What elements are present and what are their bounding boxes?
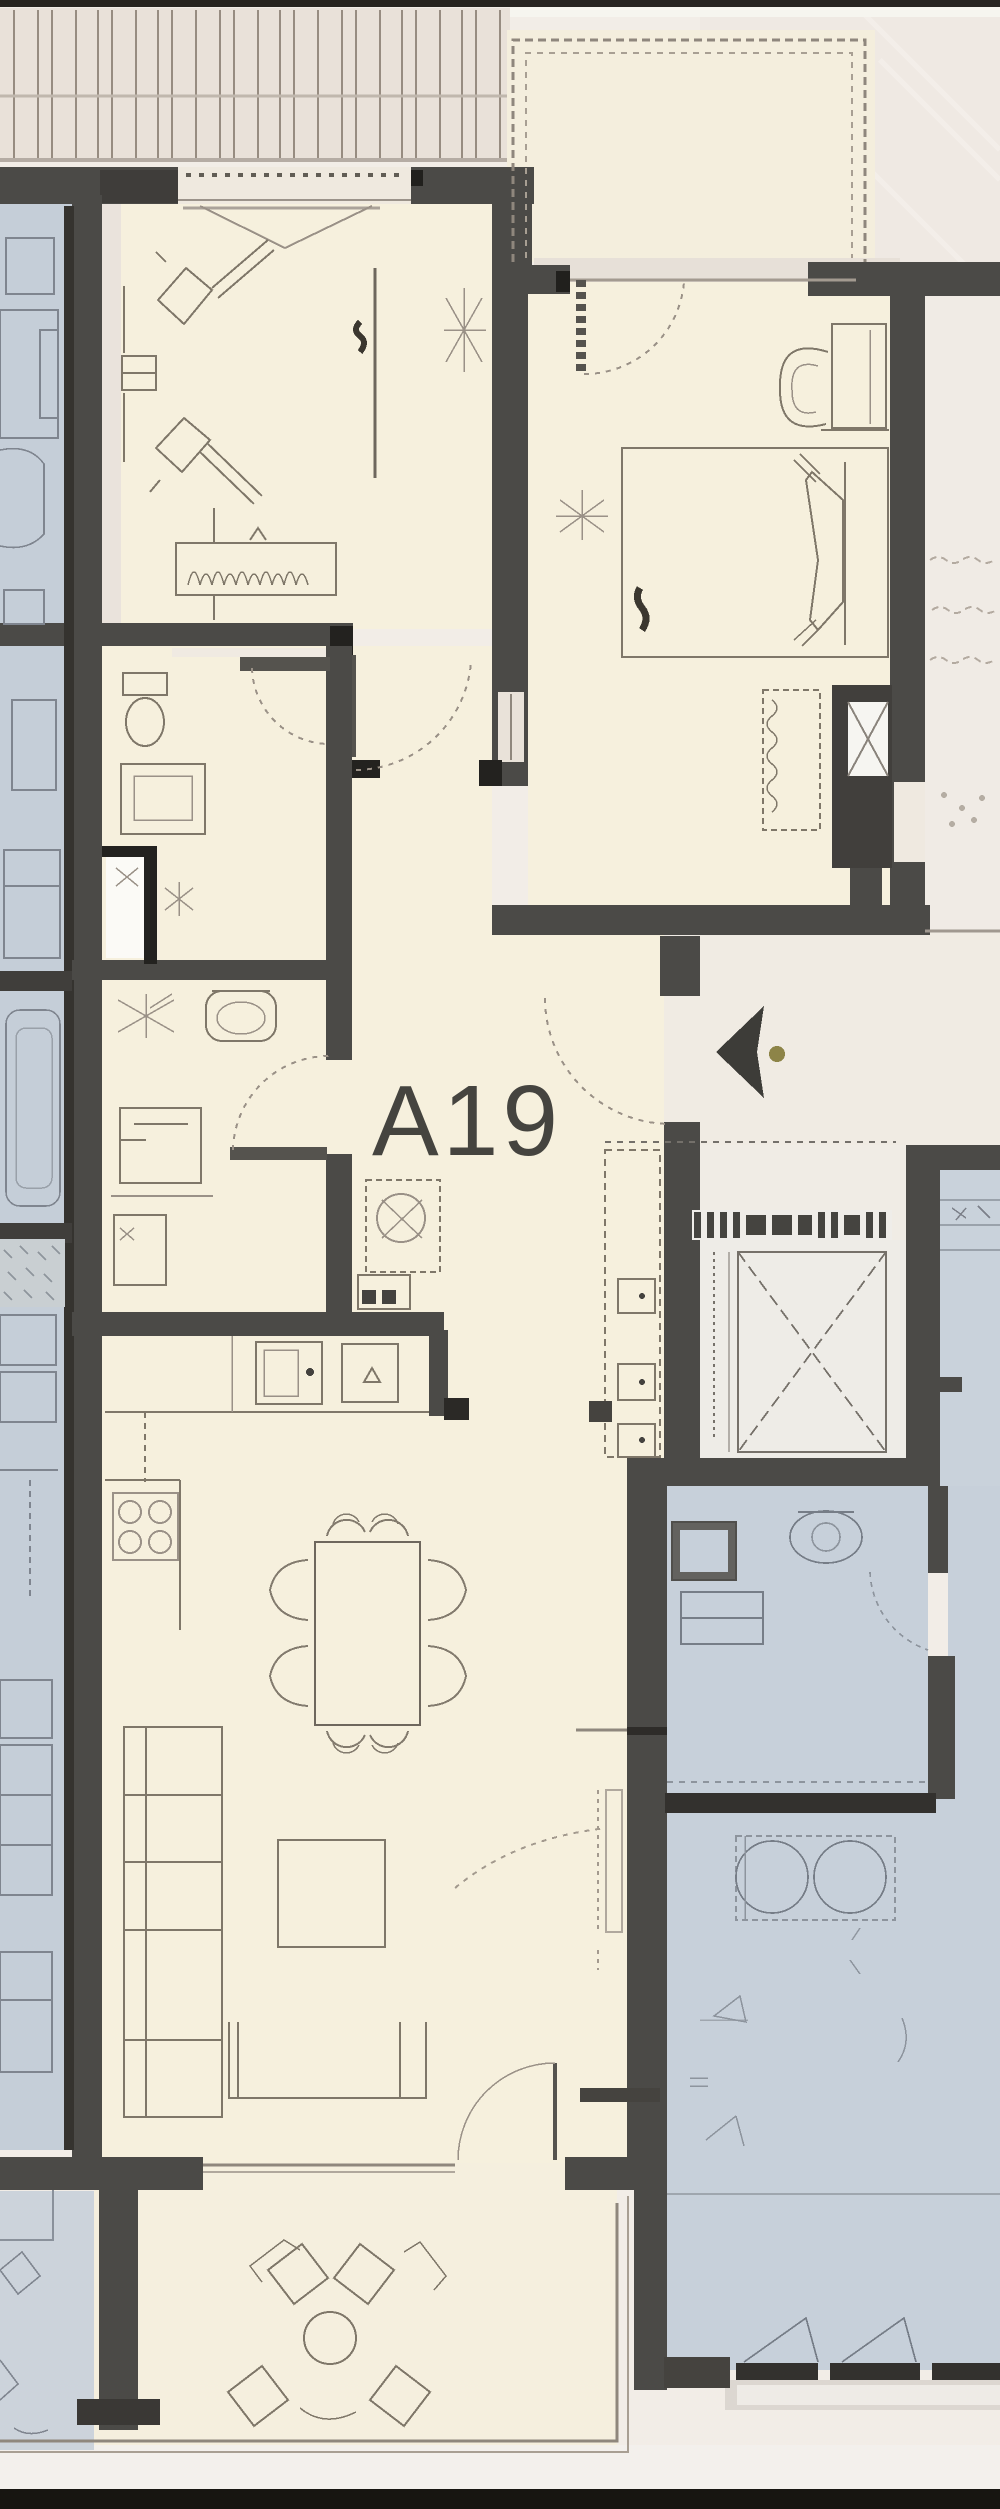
svg-text:A19: A19 (372, 1065, 562, 1177)
